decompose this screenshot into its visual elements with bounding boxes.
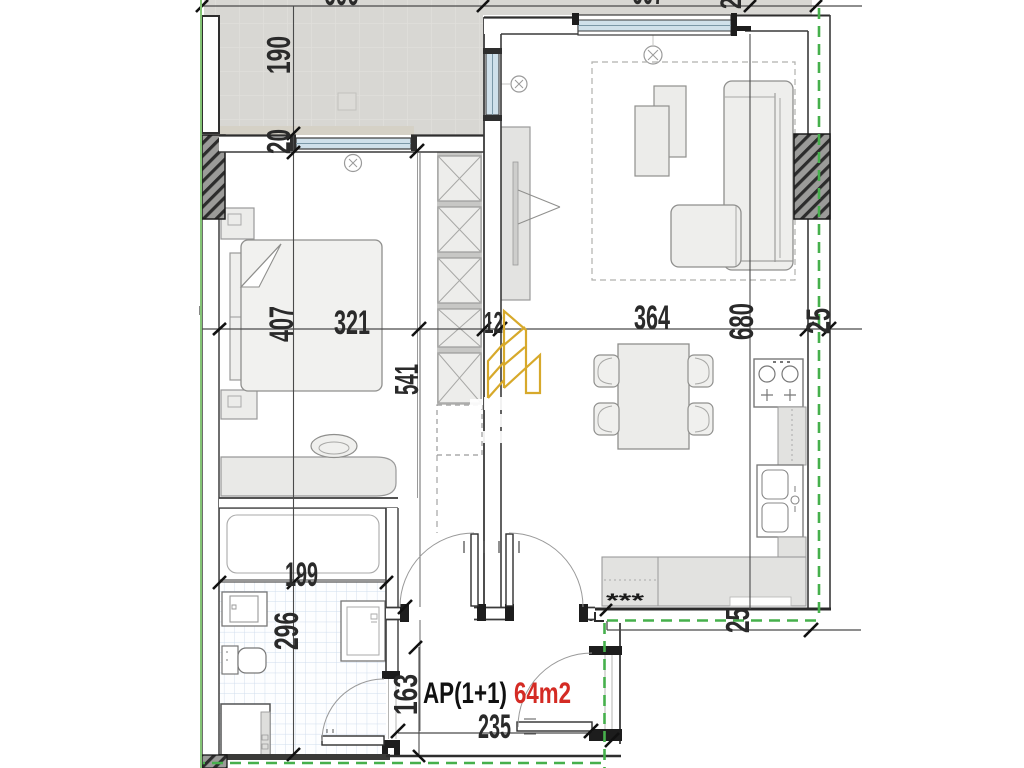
svg-text:407: 407: [263, 306, 301, 342]
svg-text:190: 190: [260, 36, 297, 74]
svg-text:600: 600: [324, 0, 359, 13]
svg-text:20: 20: [260, 129, 297, 154]
svg-text:364: 364: [634, 299, 670, 337]
svg-text:163: 163: [387, 674, 424, 715]
svg-text:296: 296: [268, 612, 306, 650]
svg-text:25: 25: [800, 308, 838, 334]
svg-text:541: 541: [388, 364, 425, 395]
svg-text:12: 12: [484, 305, 503, 340]
svg-text:321: 321: [334, 304, 370, 342]
svg-text:25: 25: [719, 608, 756, 633]
svg-text:AP(1+1): AP(1+1): [423, 677, 507, 710]
svg-text:199: 199: [285, 556, 318, 594]
svg-text:680: 680: [723, 303, 761, 340]
svg-text:235: 235: [478, 708, 511, 746]
svg-text:25: 25: [715, 0, 748, 9]
svg-text:64m2: 64m2: [514, 677, 571, 710]
svg-text:607: 607: [632, 0, 664, 12]
